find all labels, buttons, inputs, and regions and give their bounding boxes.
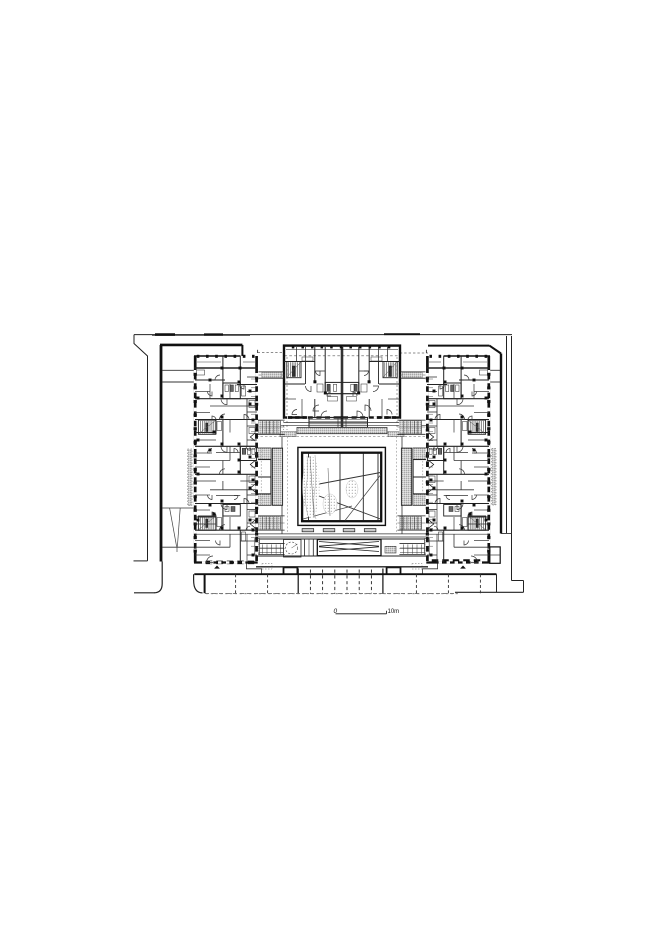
svg-text:0: 0 [334,608,338,615]
svg-text:10m: 10m [388,609,400,615]
